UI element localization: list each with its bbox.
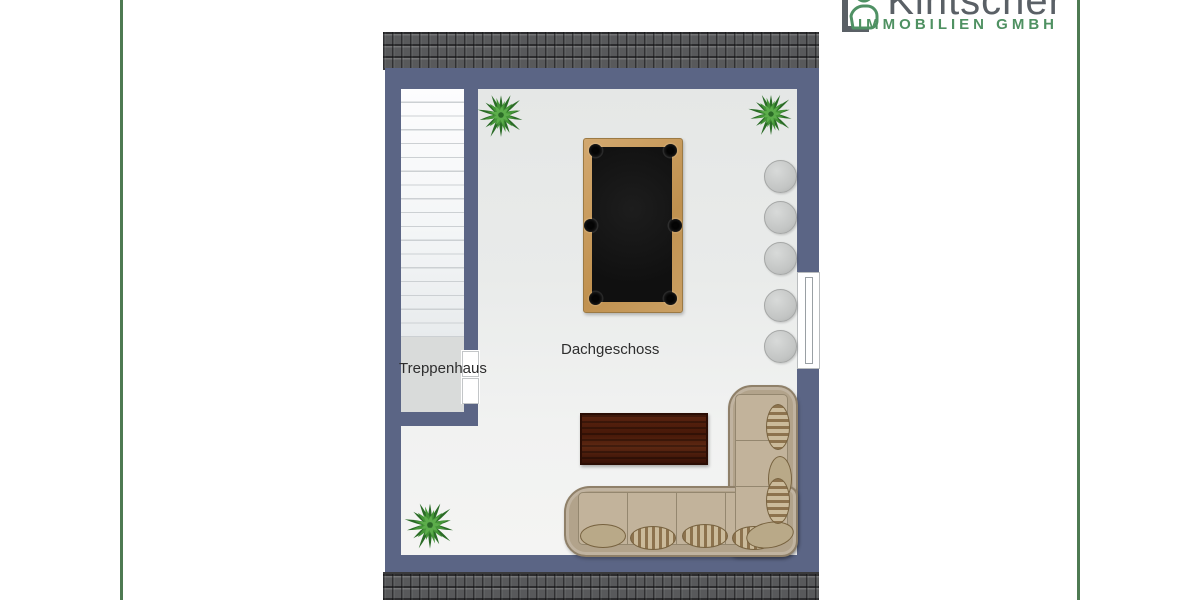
plant-icon (746, 89, 796, 139)
sofa-pillow (580, 524, 626, 548)
pool-pocket (664, 144, 677, 157)
plant-icon (402, 497, 458, 553)
sofa-pillow (766, 478, 790, 524)
pool-pocket (664, 292, 677, 305)
room-label-treppenhaus: Treppenhaus (399, 360, 487, 377)
sofa-pillow (630, 526, 676, 550)
window-pane (805, 277, 813, 364)
accent-line-left (120, 0, 123, 600)
sofa-pillow (766, 404, 790, 450)
floorplan-page: Kintscher IMMOBILIEN GMBH (0, 0, 1200, 600)
brand-logo: Kintscher IMMOBILIEN GMBH (805, 0, 1070, 40)
stool-icon (764, 160, 797, 193)
pool-pocket (589, 144, 602, 157)
plant-icon (475, 89, 527, 141)
door-panel (462, 378, 479, 404)
pool-table-felt (592, 147, 672, 302)
roof-tiles-top (383, 32, 819, 70)
pool-pocket (589, 292, 602, 305)
stool-icon (764, 330, 797, 363)
pool-pocket (669, 219, 682, 232)
staircase-icon (401, 89, 464, 337)
coffee-table-icon (580, 413, 708, 465)
stool-icon (764, 242, 797, 275)
pool-pocket (584, 219, 597, 232)
company-subtitle: IMMOBILIEN GMBH (858, 16, 1058, 33)
window-icon (797, 272, 820, 369)
stool-icon (764, 289, 797, 322)
door-icon (461, 350, 480, 404)
stool-icon (764, 201, 797, 234)
pool-table-icon (583, 138, 683, 313)
room-label-dachgeschoss: Dachgeschoss (561, 341, 659, 358)
roof-tiles-bottom (383, 572, 819, 600)
accent-line-right (1077, 0, 1080, 600)
stairwell-wall-bottom (401, 412, 478, 426)
sofa-pillow (682, 524, 728, 548)
